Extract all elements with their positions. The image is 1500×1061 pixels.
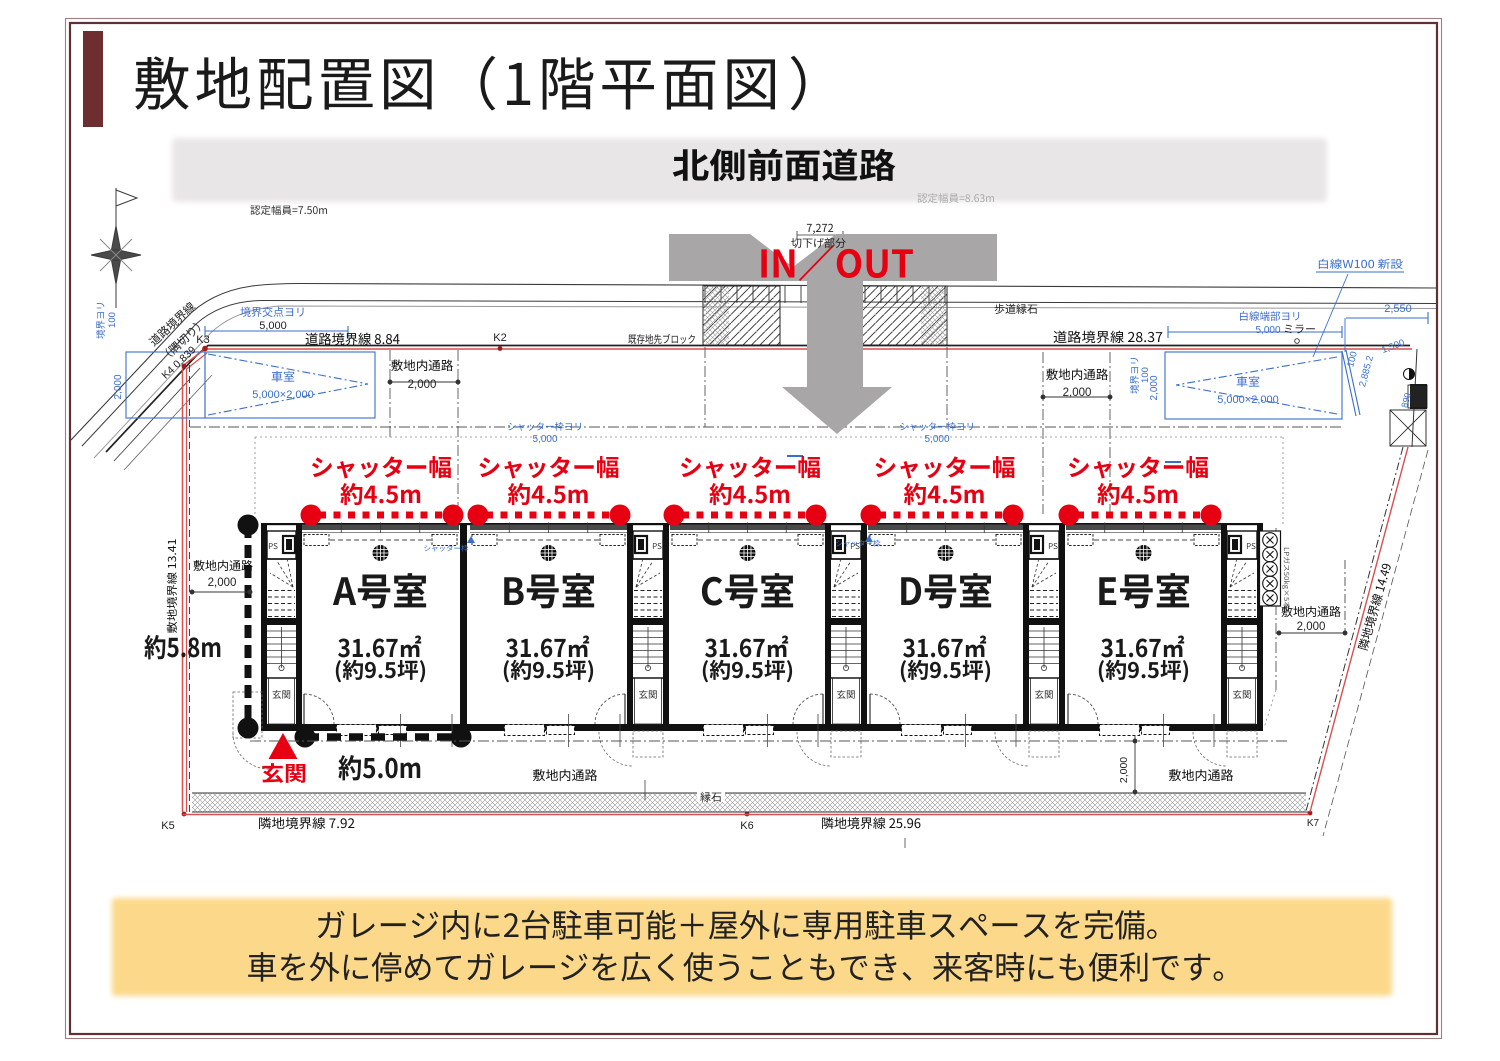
svg-text:K5: K5 [161,820,174,832]
svg-text:2,000: 2,000 [208,577,237,589]
svg-text:5,000×2,000: 5,000×2,000 [252,389,313,401]
svg-text:K7: K7 [1307,818,1320,829]
svg-text:5,000: 5,000 [1255,325,1280,336]
svg-text:2,000: 2,000 [113,374,124,399]
svg-text:2,000: 2,000 [1063,387,1092,399]
svg-text:5,000: 5,000 [259,320,287,332]
svg-text:5,000: 5,000 [924,434,949,445]
svg-text:2,000: 2,000 [408,379,437,391]
svg-text:2,000: 2,000 [1297,621,1326,633]
svg-text:100: 100 [107,312,118,328]
svg-text:K3: K3 [196,334,209,346]
svg-text:K2: K2 [493,332,506,344]
svg-text:2,550: 2,550 [1384,303,1412,315]
svg-text:5,000×2,000: 5,000×2,000 [1217,394,1278,406]
svg-text:K6: K6 [740,820,753,832]
svg-text:2,000: 2,000 [1149,375,1160,400]
svg-text:2,000: 2,000 [1118,757,1130,783]
svg-text:5,000: 5,000 [532,434,557,445]
